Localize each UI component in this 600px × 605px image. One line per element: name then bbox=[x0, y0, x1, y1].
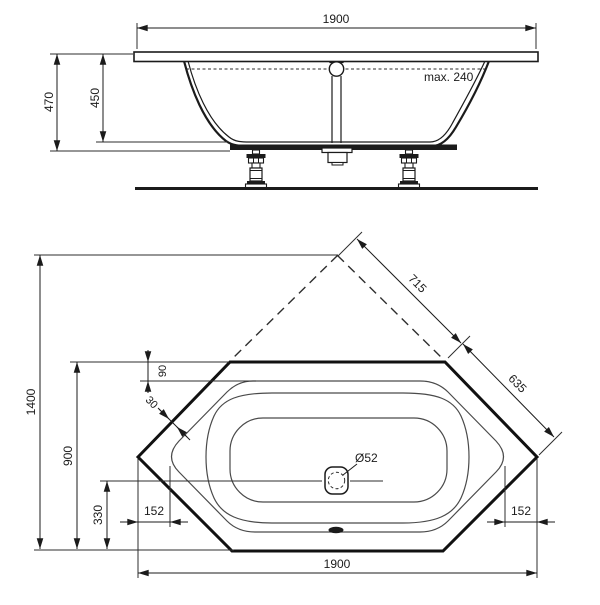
dim-label-drain-offset: 330 bbox=[91, 505, 105, 525]
bathtub-rim bbox=[134, 52, 538, 62]
corner-dashed-lines bbox=[231, 256, 444, 361]
dim-label-rim-width: 90 bbox=[157, 365, 169, 377]
overflow-hole bbox=[329, 527, 344, 533]
plan-view: 1400 900 330 1900 152 152 715 635 90 30 … bbox=[24, 232, 562, 578]
drain-trap bbox=[322, 148, 352, 165]
side-view: 1900 470 450 max. 240 bbox=[42, 12, 538, 189]
dim-label-height-inner: 450 bbox=[88, 88, 102, 108]
dim-label-rim-edge: 30 bbox=[143, 394, 160, 411]
bathtub-drawing: 1900 470 450 max. 240 bbox=[0, 0, 600, 600]
overflow-pipe bbox=[329, 57, 343, 144]
right-foot bbox=[399, 150, 420, 188]
dim-line-715 bbox=[357, 239, 461, 343]
dim-label-overall-depth: 1400 bbox=[24, 388, 38, 415]
note-max-fill: max. 240 bbox=[424, 70, 474, 84]
dim-label-height-total: 470 bbox=[42, 92, 56, 112]
dim-label-width-side: 1900 bbox=[323, 12, 350, 26]
technical-drawing-canvas: 1900 470 450 max. 240 bbox=[0, 0, 600, 600]
dim-label-corner-right: 152 bbox=[511, 504, 531, 518]
dim-label-diagonal-upper: 715 bbox=[405, 271, 429, 295]
dim-label-width: 900 bbox=[61, 446, 75, 466]
dim-label-overall-length: 1900 bbox=[324, 557, 351, 571]
dim-label-corner-left: 152 bbox=[144, 504, 164, 518]
dim-label-drain-diameter: Ø52 bbox=[355, 451, 378, 465]
dim-label-diagonal-lower: 635 bbox=[505, 371, 529, 395]
left-foot bbox=[246, 150, 267, 188]
side-extension-lines bbox=[50, 23, 536, 151]
